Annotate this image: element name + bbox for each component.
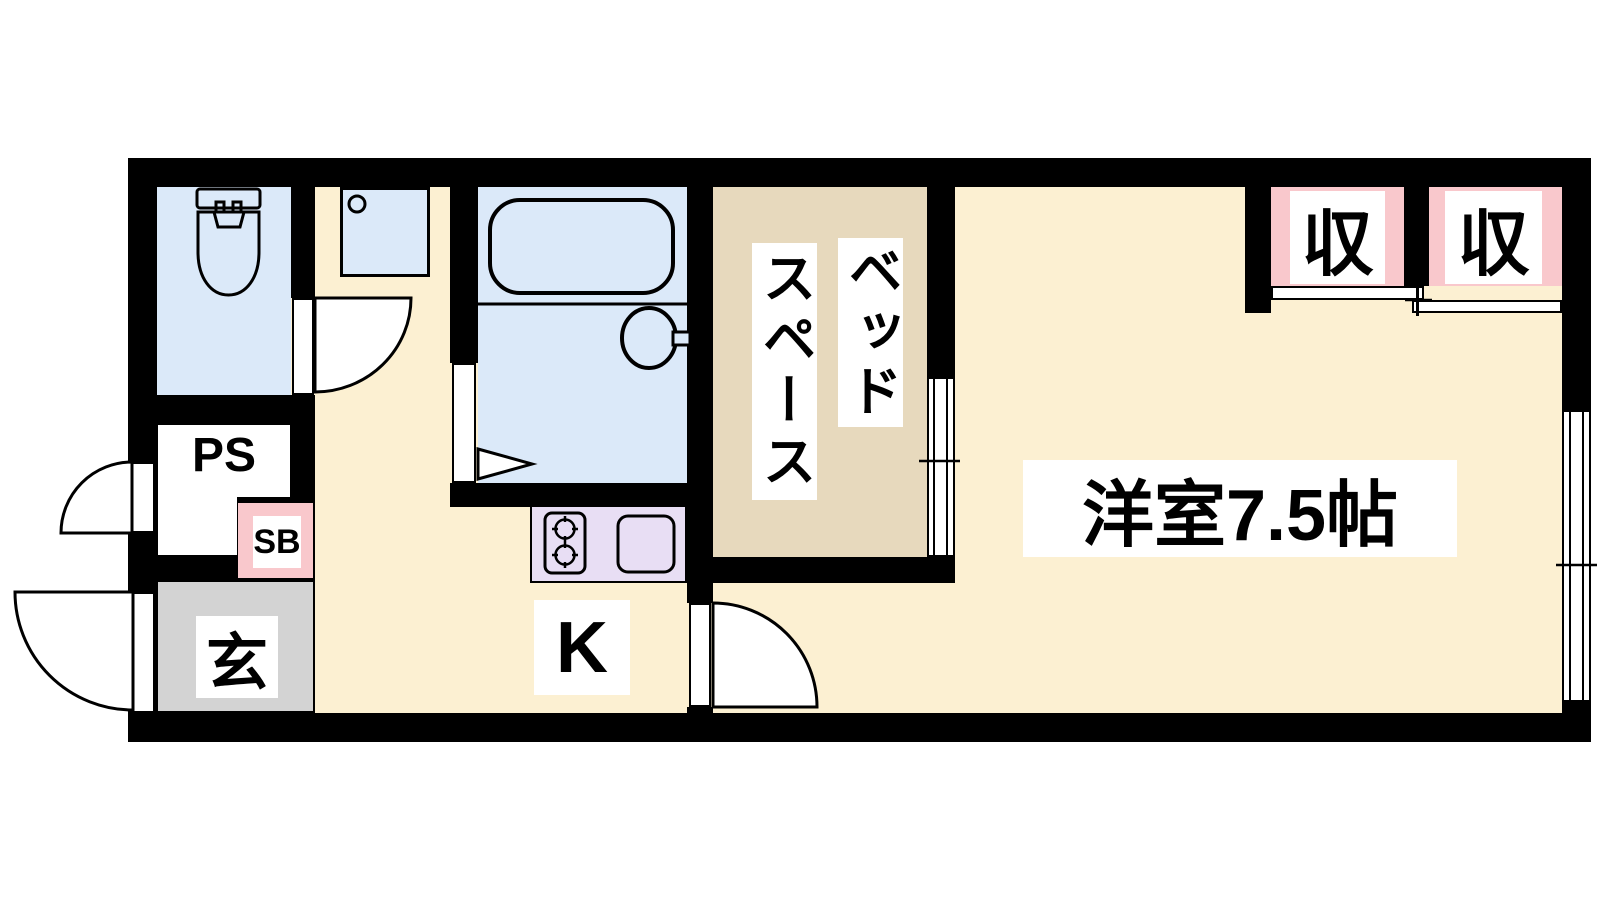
label-shoe-box: SB xyxy=(253,516,301,568)
closet-divider-wall xyxy=(1404,187,1429,286)
label-bed-space-col1-text: ベッド xyxy=(831,243,910,423)
label-bed-space-col2-text: スペース xyxy=(745,250,824,494)
toilet-right-wall xyxy=(291,187,315,298)
label-closet-1-text: 収 xyxy=(1301,185,1373,290)
door-leaf-entry-lower xyxy=(130,592,155,713)
room-toilet xyxy=(157,187,291,395)
bed-space-right-wall xyxy=(927,187,955,377)
washbasin-counter xyxy=(340,187,430,277)
room-bathroom xyxy=(478,187,687,483)
pipe-space-box-ext xyxy=(158,497,237,555)
door-swing-entry-upper-icon xyxy=(61,462,132,533)
window-main-right xyxy=(1562,410,1591,702)
label-bed-space-col1: ベッド xyxy=(838,238,903,427)
label-closet-2: 収 xyxy=(1445,191,1542,284)
label-bed-space-col2: スペース xyxy=(752,243,817,500)
window-bed-space xyxy=(927,377,955,557)
closet-block-left-wall xyxy=(1245,187,1271,313)
closet-door-junction-tick xyxy=(1416,288,1419,316)
label-kitchen: K xyxy=(534,600,630,695)
bed-space-bottom-wall xyxy=(687,557,955,583)
label-entrance-text: 玄 xyxy=(206,612,268,702)
door-leaf-entry-upper xyxy=(130,462,155,533)
wall-top xyxy=(128,158,1591,187)
label-western-room: 洋室7.5帖 xyxy=(1023,460,1457,557)
closet-sliding-door-right xyxy=(1412,300,1562,313)
label-entrance: 玄 xyxy=(196,616,278,698)
door-leaf-kitchen xyxy=(689,603,711,707)
floor-plan: 洋室7.5帖 ベッド スペース K PS SB 玄 収 収 xyxy=(0,0,1600,900)
label-closet-1: 収 xyxy=(1290,191,1385,284)
wall-bottom xyxy=(128,713,1591,742)
label-pipe-space: PS xyxy=(176,427,272,483)
door-swing-entry-lower-icon xyxy=(15,592,133,710)
label-pipe-space-text: PS xyxy=(192,428,256,483)
label-kitchen-text: K xyxy=(556,607,608,689)
door-leaf-toilet xyxy=(292,298,314,395)
bath-bottom-wall xyxy=(450,483,713,507)
kitchen-counter xyxy=(530,505,687,583)
label-shoe-box-text: SB xyxy=(253,523,300,562)
label-western-room-text: 洋室7.5帖 xyxy=(1082,456,1398,561)
label-closet-2-text: 収 xyxy=(1457,185,1529,290)
door-leaf-bathroom xyxy=(452,363,476,483)
center-vertical-wall xyxy=(687,187,713,603)
bath-left-wall xyxy=(450,187,478,363)
